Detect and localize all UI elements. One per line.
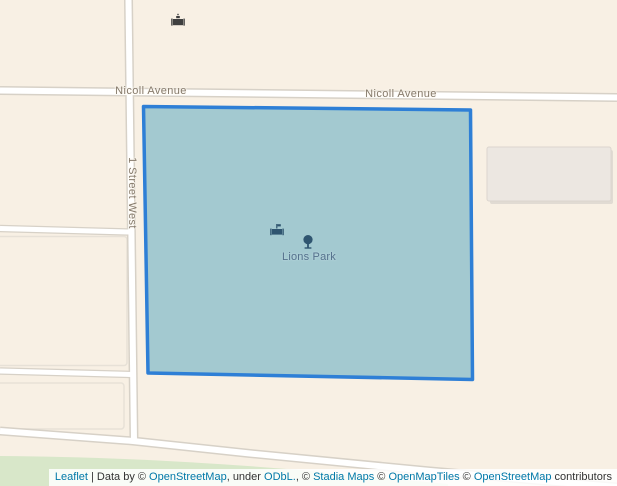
openstreetmap-link[interactable]: OpenStreetMap (474, 471, 552, 483)
odbl-link[interactable]: ODbL. (264, 471, 296, 483)
tree-icon (300, 234, 316, 250)
picnic-site-icon (170, 13, 186, 29)
attribution-text: © (374, 471, 388, 483)
openstreetmap-link[interactable]: OpenStreetMap (149, 471, 227, 483)
map-canvas[interactable]: Nicoll Avenue Nicoll Avenue 1 Street Wes… (0, 0, 617, 486)
attribution-text: | Data by © (88, 471, 149, 483)
attribution-text: , © (296, 471, 313, 483)
picnic-site-icon (269, 223, 285, 239)
attribution-text: , under (227, 471, 264, 483)
attribution-text: © (460, 471, 474, 483)
stadia-maps-link[interactable]: Stadia Maps (313, 471, 374, 483)
openmaptiles-link[interactable]: OpenMapTiles (388, 471, 459, 483)
building-footprint (487, 147, 611, 201)
attribution-text: contributors (551, 471, 612, 483)
leaflet-link[interactable]: Leaflet (55, 471, 88, 483)
attribution-bar: Leaflet | Data by © OpenStreetMap, under… (49, 469, 617, 486)
